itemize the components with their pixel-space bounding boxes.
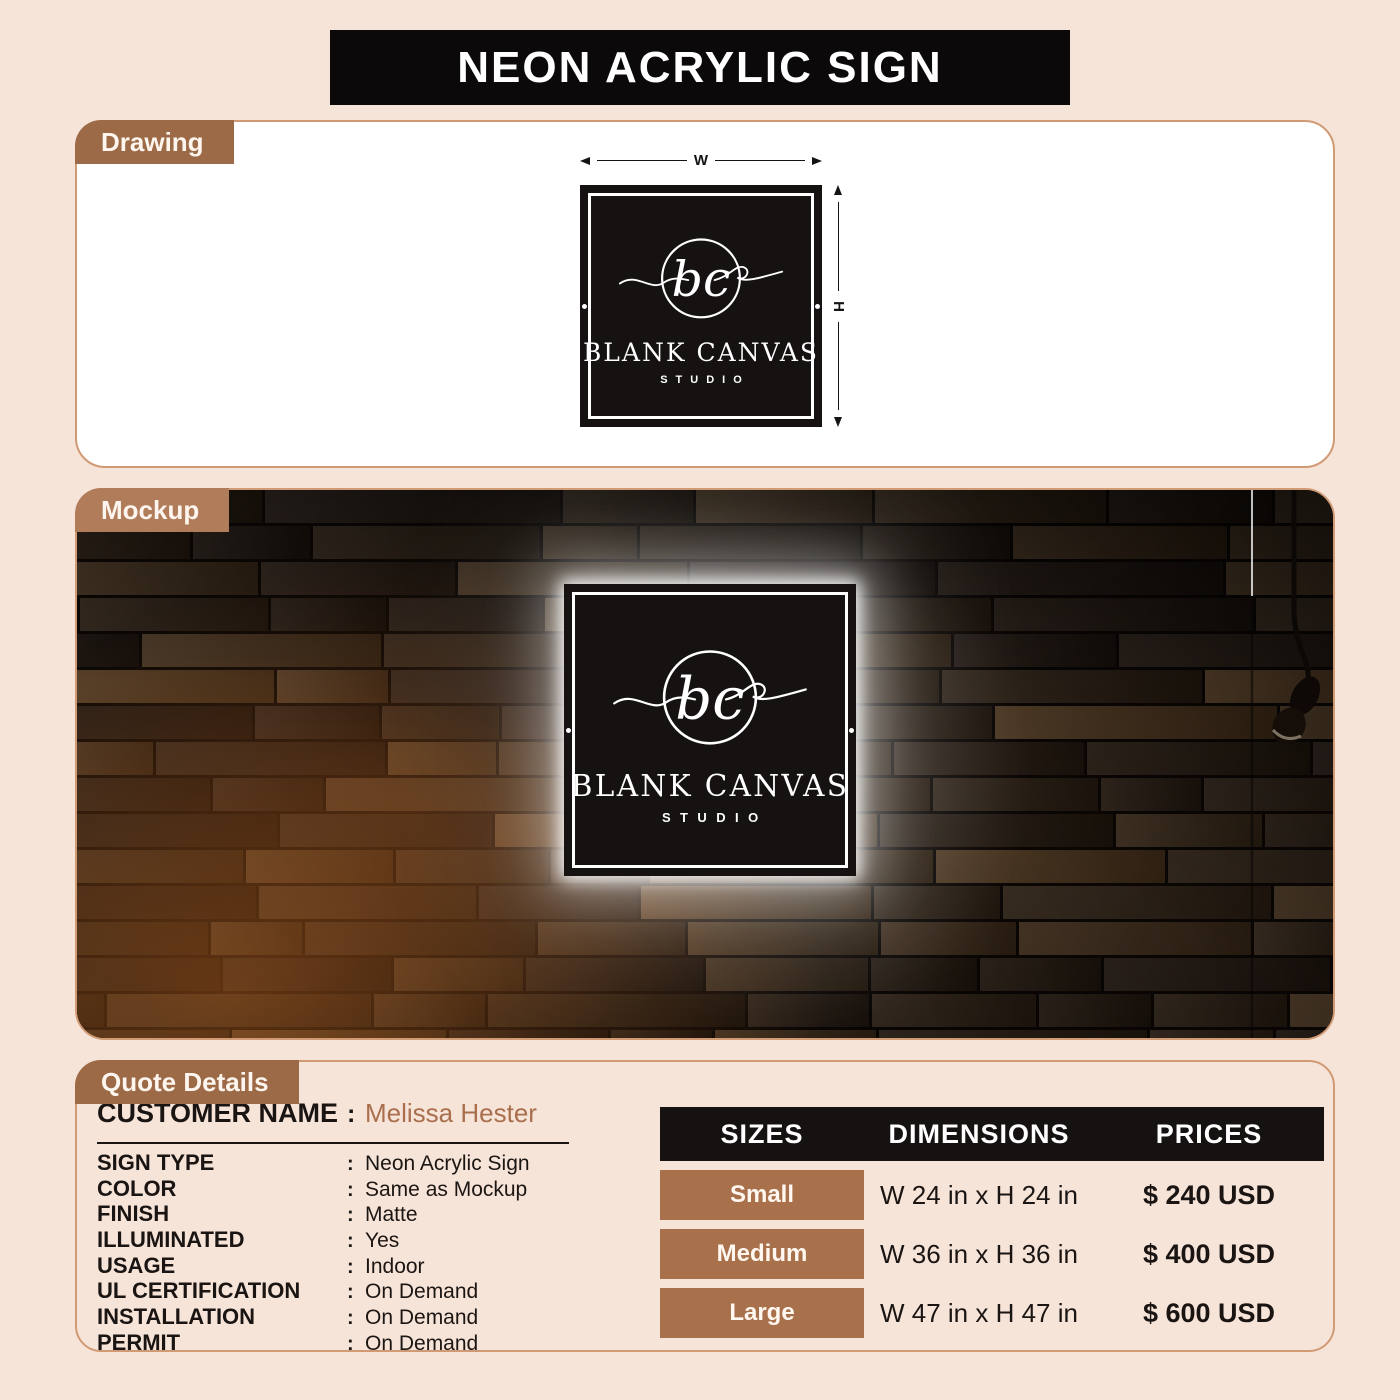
detail-value: Yes [363,1229,587,1253]
pricing-row-medium: Medium W 36 in x H 36 in $ 400 USD [660,1229,1324,1279]
detail-label: SIGN TYPE [97,1150,347,1176]
detail-row-color: COLOR : Same as Mockup [97,1176,587,1202]
pricing-table: SIZES DIMENSIONS PRICES Small W 24 in x … [660,1107,1324,1338]
price-value: $ 400 USD [1094,1239,1324,1270]
detail-row-usage: USAGE : Indoor [97,1253,587,1279]
colon: : [347,1230,363,1253]
colon: : [347,1281,363,1304]
brand-monogram: bc [675,664,744,732]
drawing-section-tab: Drawing [75,120,234,164]
detail-value: On Demand [363,1280,587,1304]
column-header-sizes: SIZES [660,1119,864,1150]
drawing-panel: W bc BLANK CANVAS STUDIO H [75,120,1335,468]
pendant-light-icon [1137,490,1335,1040]
detail-value: Same as Mockup [363,1178,587,1202]
width-label: W [694,152,708,169]
arrow-up-icon [834,185,842,195]
dimension-line [715,160,805,161]
detail-value: Matte [363,1203,587,1227]
detail-label: FINISH [97,1201,347,1227]
colon: : [347,1256,363,1279]
arrow-down-icon [834,417,842,427]
detail-row-ul-certification: UL CERTIFICATION : On Demand [97,1278,587,1304]
colon: : [347,1204,363,1227]
detail-row-finish: FINISH : Matte [97,1201,587,1227]
pricing-row-large: Large W 47 in x H 47 in $ 600 USD [660,1288,1324,1338]
mounting-hole-right-icon [815,304,820,309]
mockup-panel: bc BLANK CANVAS STUDIO [75,488,1335,1040]
brand-logo-icon: bc [600,635,819,767]
column-header-dimensions: DIMENSIONS [864,1119,1094,1150]
size-button-medium[interactable]: Medium [660,1229,864,1279]
detail-value: On Demand [363,1332,587,1356]
dimension-line [597,160,687,161]
brand-subtitle: STUDIO [652,811,767,825]
colon: : [347,1100,363,1129]
detail-label: COLOR [97,1176,347,1202]
page-title: NEON ACRYLIC SIGN [330,30,1070,105]
dimensions-value: W 24 in x H 24 in [864,1180,1094,1211]
pricing-row-small: Small W 24 in x H 24 in $ 240 USD [660,1170,1324,1220]
colon: : [347,1153,363,1176]
mockup-section-tab: Mockup [75,488,229,532]
detail-value: Indoor [363,1255,587,1279]
detail-label: PERMIT [97,1330,347,1356]
detail-label: USAGE [97,1253,347,1279]
arrow-left-icon [580,157,590,165]
detail-label: INSTALLATION [97,1304,347,1330]
quote-details-section-tab: Quote Details [75,1060,299,1104]
pricing-table-header: SIZES DIMENSIONS PRICES [660,1107,1324,1161]
price-value: $ 600 USD [1094,1298,1324,1329]
detail-label: UL CERTIFICATION [97,1278,347,1304]
detail-row-sign-type: SIGN TYPE : Neon Acrylic Sign [97,1150,587,1176]
detail-row-illuminated: ILLUMINATED : Yes [97,1227,587,1253]
dimensions-value: W 36 in x H 36 in [864,1239,1094,1270]
height-label: H [830,301,847,312]
dimensions-value: W 47 in x H 47 in [864,1298,1094,1329]
detail-label: ILLUMINATED [97,1227,347,1253]
customer-underline [97,1142,569,1144]
drawing-sign: bc BLANK CANVAS STUDIO [580,185,822,427]
detail-value: Neon Acrylic Sign [363,1152,587,1176]
brand-name: BLANK CANVAS [571,768,850,802]
colon: : [347,1307,363,1330]
detail-value: On Demand [363,1306,587,1330]
brick [1333,958,1335,991]
column-header-prices: PRICES [1094,1119,1324,1150]
dimension-height-arrow: H [830,185,846,427]
dimension-line [838,202,839,291]
size-button-small[interactable]: Small [660,1170,864,1220]
sign-content: bc BLANK CANVAS STUDIO [571,635,850,825]
arrow-right-icon [812,157,822,165]
detail-row-installation: INSTALLATION : On Demand [97,1304,587,1330]
dimension-line [838,322,839,411]
mockup-sign: bc BLANK CANVAS STUDIO [564,584,856,876]
customer-name-value: Melissa Hester [363,1098,575,1129]
colon: : [347,1333,363,1356]
mounting-hole-left-icon [582,304,587,309]
sign-inner-border [588,193,814,419]
quote-detail-list: SIGN TYPE : Neon Acrylic Sign COLOR : Sa… [97,1150,587,1356]
size-button-large[interactable]: Large [660,1288,864,1338]
price-value: $ 240 USD [1094,1180,1324,1211]
detail-row-permit: PERMIT : On Demand [97,1330,587,1356]
colon: : [347,1179,363,1202]
mounting-hole-right-icon [849,728,854,733]
dimension-width-arrow: W [580,152,822,169]
